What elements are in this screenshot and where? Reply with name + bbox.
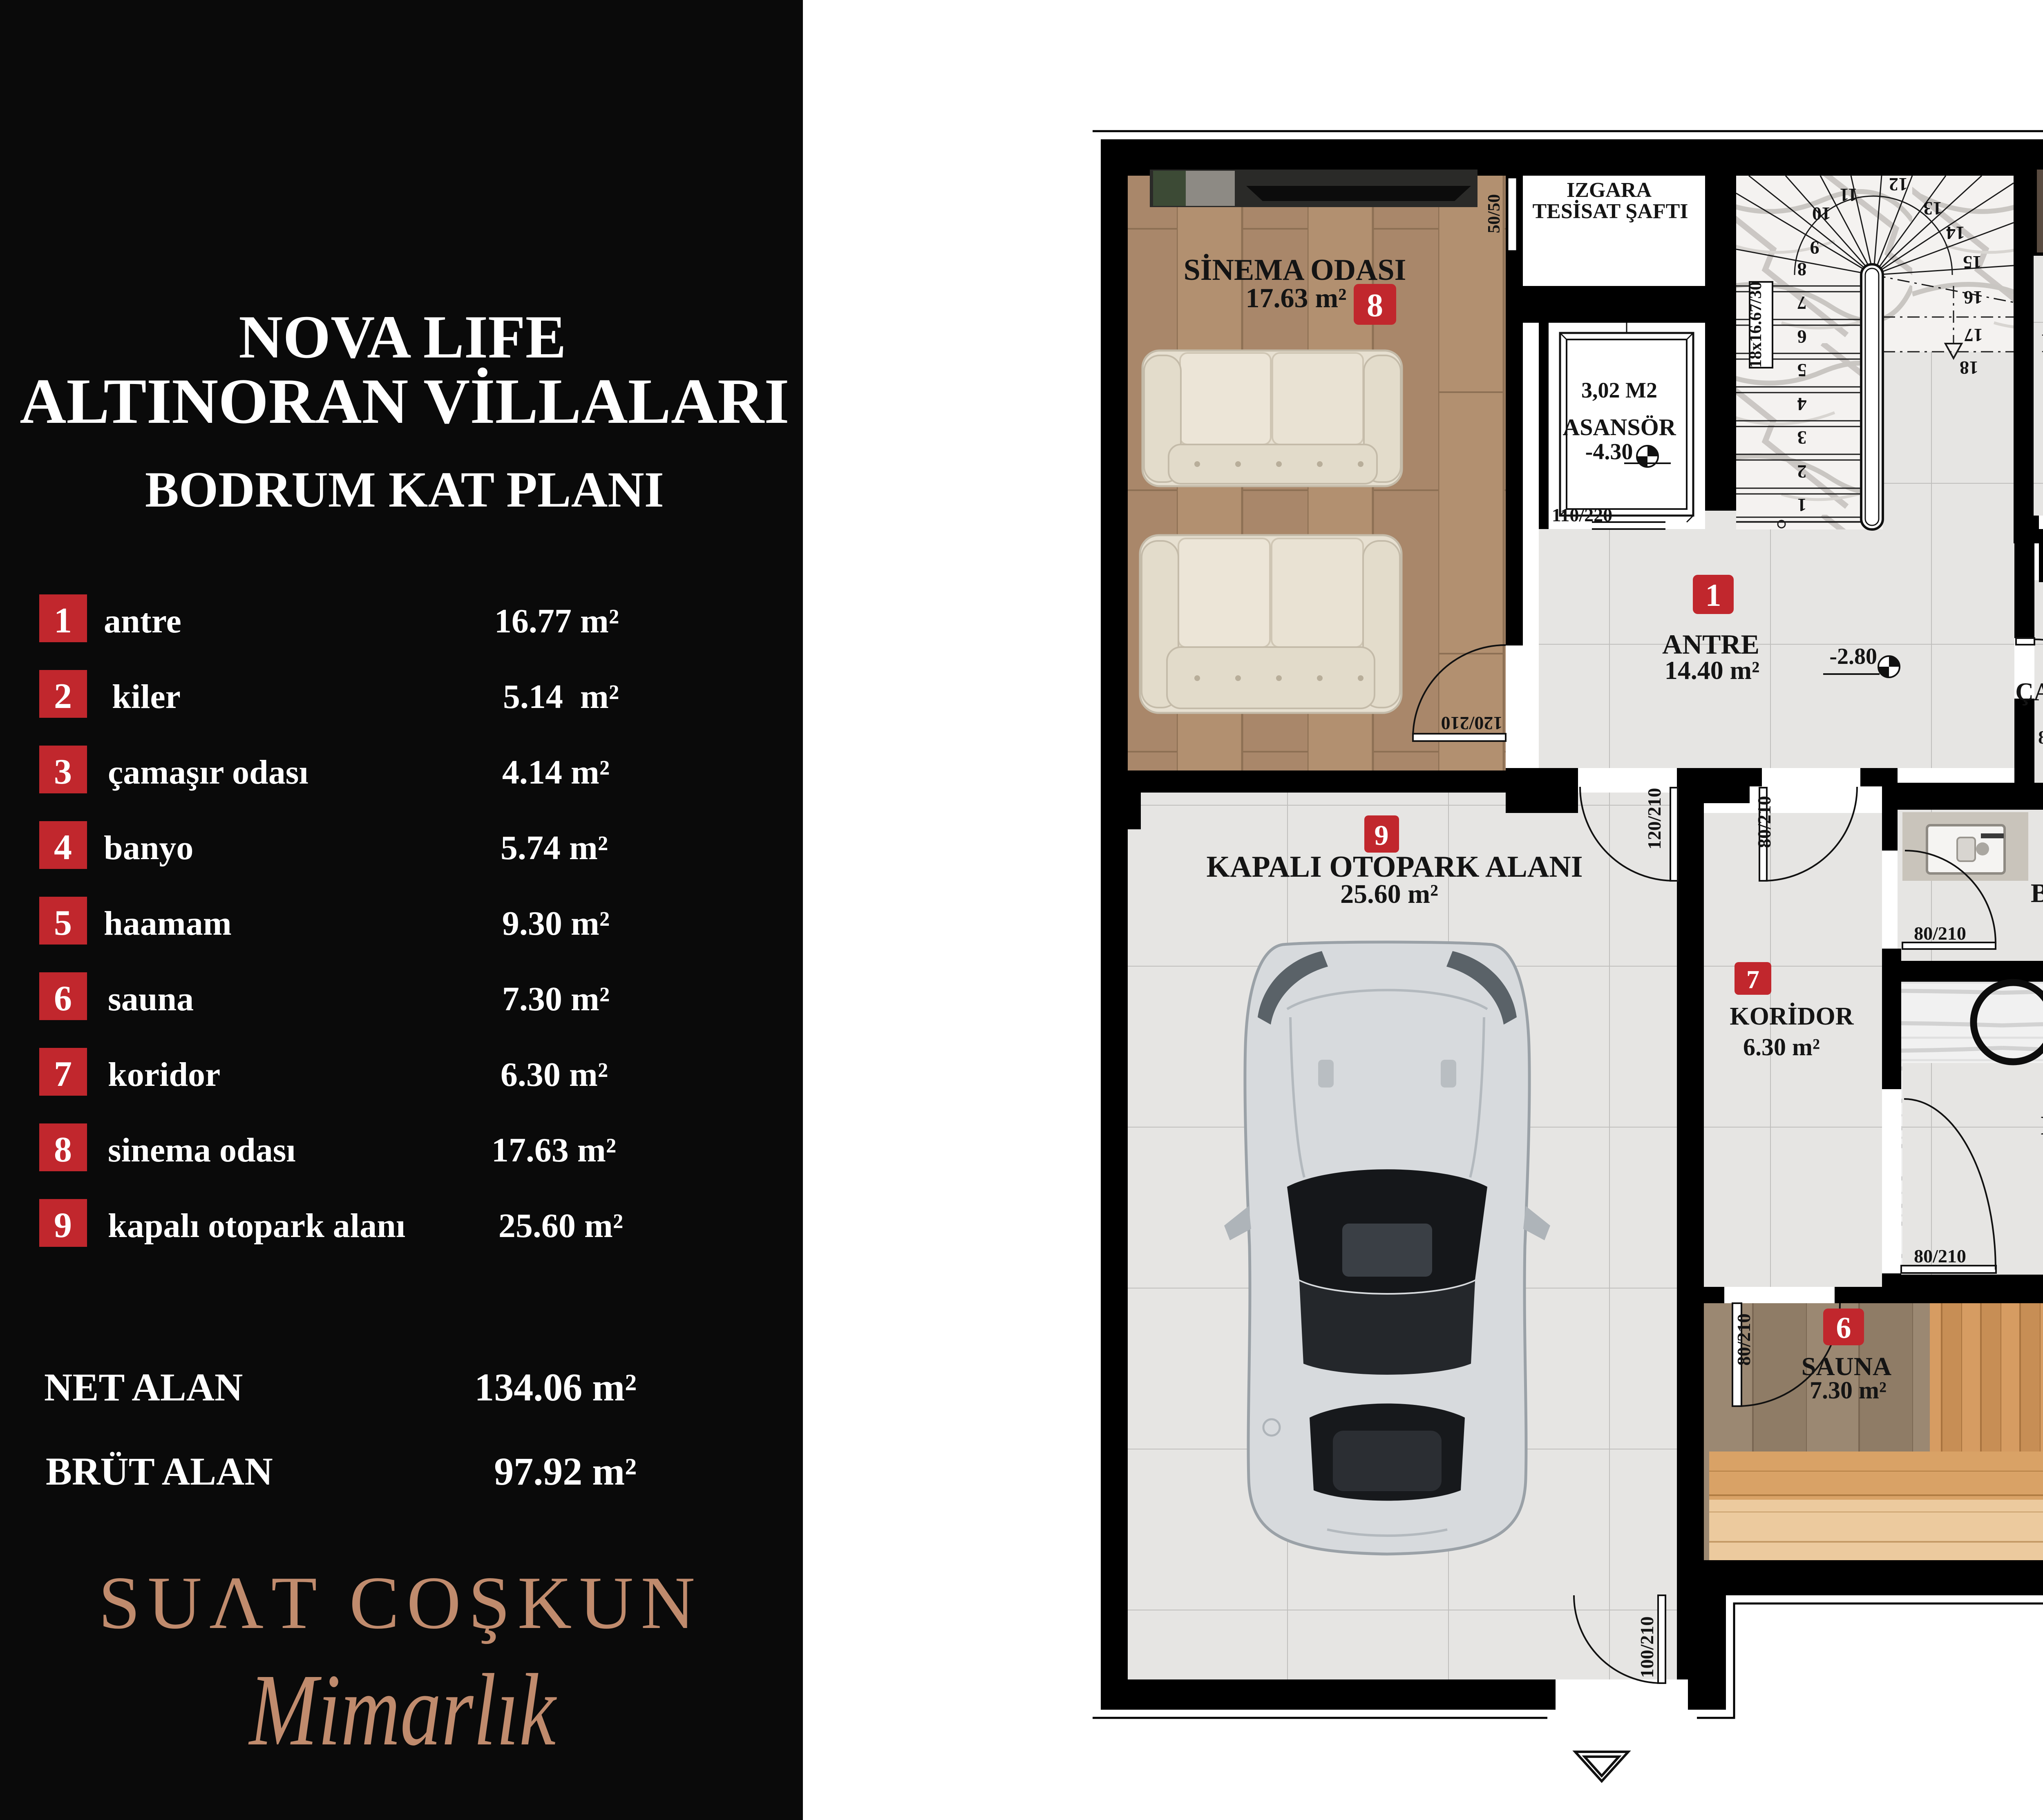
svg-text:3: 3 [1797,427,1807,448]
svg-text:ANTRE: ANTRE [1662,629,1759,660]
svg-text:sinema odası: sinema odası [108,1131,296,1169]
svg-text:Mimarlık: Mimarlık [248,1653,557,1767]
svg-text:-4.30: -4.30 [1585,439,1633,464]
svg-text:25.60 m²: 25.60 m² [498,1207,623,1245]
svg-text:ALTINORAN VİLLALARI: ALTINORAN VİLLALARI [20,366,789,437]
svg-text:7: 7 [54,1054,72,1094]
svg-text:4: 4 [54,828,72,867]
svg-text:17: 17 [1964,325,1983,346]
svg-text:SUΛT COŞKUN: SUΛT COŞKUN [98,1561,702,1644]
svg-text:1: 1 [54,601,72,641]
svg-text:KORİDOR: KORİDOR [1730,1003,1854,1030]
svg-text:antre: antre [104,602,181,640]
svg-text:NOVA LIFE: NOVA LIFE [239,303,566,371]
svg-text:6.30 m²: 6.30 m² [1743,1034,1820,1061]
svg-text:14: 14 [1946,223,1965,243]
svg-text:1: 1 [1705,577,1721,613]
svg-text:17.63 m²: 17.63 m² [492,1131,616,1169]
svg-text:1: 1 [1797,495,1807,516]
svg-text:8: 8 [54,1130,72,1170]
svg-text:TESİSAT ŞAFTI: TESİSAT ŞAFTI [1532,200,1688,223]
svg-text:50/50: 50/50 [1485,194,1504,233]
svg-text:6: 6 [1797,326,1807,347]
svg-text:3: 3 [54,752,72,792]
svg-text:7.30 m²: 7.30 m² [1810,1377,1887,1404]
svg-text:çamaşır odası: çamaşır odası [108,753,308,791]
svg-text:100/210: 100/210 [1636,1617,1657,1678]
svg-text:ÇAM. ODASI: ÇAM. ODASI [2015,678,2043,706]
svg-text:15: 15 [1963,252,1982,273]
svg-text:80/210: 80/210 [1914,923,1966,944]
svg-text:12: 12 [1889,174,1908,195]
svg-text:9: 9 [54,1206,72,1245]
svg-text:2: 2 [1797,461,1807,482]
svg-text:KAPALI OTOPARK ALANI: KAPALI OTOPARK ALANI [1207,850,1583,884]
svg-text:6.30 m²: 6.30 m² [501,1056,608,1094]
svg-text:kiler: kiler [112,678,181,716]
svg-text:5: 5 [1797,360,1807,381]
svg-text:11: 11 [1840,185,1857,205]
svg-text:4.14 m²: 4.14 m² [502,753,610,791]
svg-text:8: 8 [1797,259,1807,280]
svg-text:KİLER: KİLER [2042,328,2043,358]
svg-text:25.60 m²: 25.60 m² [1340,879,1438,909]
svg-text:6: 6 [54,979,72,1018]
svg-text:3,02 M2: 3,02 M2 [1581,378,1657,402]
svg-text:BRÜT ALAN: BRÜT ALAN [46,1449,273,1493]
svg-text:16.77 m²: 16.77 m² [494,602,619,640]
svg-text:97.92 m²: 97.92 m² [494,1449,637,1493]
svg-text:120/210: 120/210 [1441,713,1503,734]
svg-text:SİNEMA ODASI: SİNEMA ODASI [1184,253,1406,287]
svg-text:4: 4 [1797,394,1807,415]
svg-text:9: 9 [1810,237,1819,258]
svg-text:80/210: 80/210 [1754,796,1775,848]
svg-text:haamam: haamam [104,904,232,942]
svg-text:sauna: sauna [108,980,194,1018]
svg-text:134.06 m²: 134.06 m² [474,1365,637,1409]
svg-text:9.30 m²: 9.30 m² [502,904,610,942]
svg-text:5.14 m²: 5.14 m² [503,678,619,716]
svg-text:7.30 m²: 7.30 m² [502,980,610,1018]
svg-text:10: 10 [1812,203,1831,224]
svg-text:14.40 m²: 14.40 m² [1665,656,1760,685]
svg-text:BODRUM KAT PLANI: BODRUM KAT PLANI [145,462,664,518]
svg-text:80/210: 80/210 [1733,1313,1754,1366]
svg-text:120/210: 120/210 [1644,788,1665,850]
svg-text:6: 6 [1836,1311,1851,1345]
svg-text:16: 16 [1964,287,1983,308]
svg-text:110/220: 110/220 [1552,505,1612,525]
svg-text:NET ALAN: NET ALAN [44,1365,243,1409]
svg-text:7: 7 [1746,965,1759,994]
svg-text:13: 13 [1923,198,1942,219]
svg-text:BANYO: BANYO [2031,878,2043,908]
svg-text:18x16.67/30: 18x16.67/30 [1746,281,1765,368]
svg-text:2: 2 [54,677,72,716]
svg-text:7: 7 [1797,293,1807,313]
svg-text:5.74 m²: 5.74 m² [501,829,608,867]
svg-text:HAMAM: HAMAM [2041,1111,2043,1141]
svg-text:18: 18 [1960,357,1978,378]
svg-text:17.63 m²: 17.63 m² [1245,282,1346,313]
svg-text:ASANSÖR: ASANSÖR [1562,414,1676,440]
svg-text:5: 5 [54,903,72,943]
svg-text:kapalı otopark alanı: kapalı otopark alanı [108,1207,405,1245]
svg-text:80/210: 80/210 [1914,1246,1966,1266]
svg-text:9: 9 [1375,820,1389,851]
svg-text:IZGARA: IZGARA [1567,179,1652,202]
svg-text:koridor: koridor [108,1056,220,1094]
svg-text:-2.80: -2.80 [1829,644,1877,669]
svg-text:8: 8 [1367,288,1383,324]
svg-text:banyo: banyo [104,829,193,867]
svg-text:80/210: 80/210 [2038,727,2043,748]
